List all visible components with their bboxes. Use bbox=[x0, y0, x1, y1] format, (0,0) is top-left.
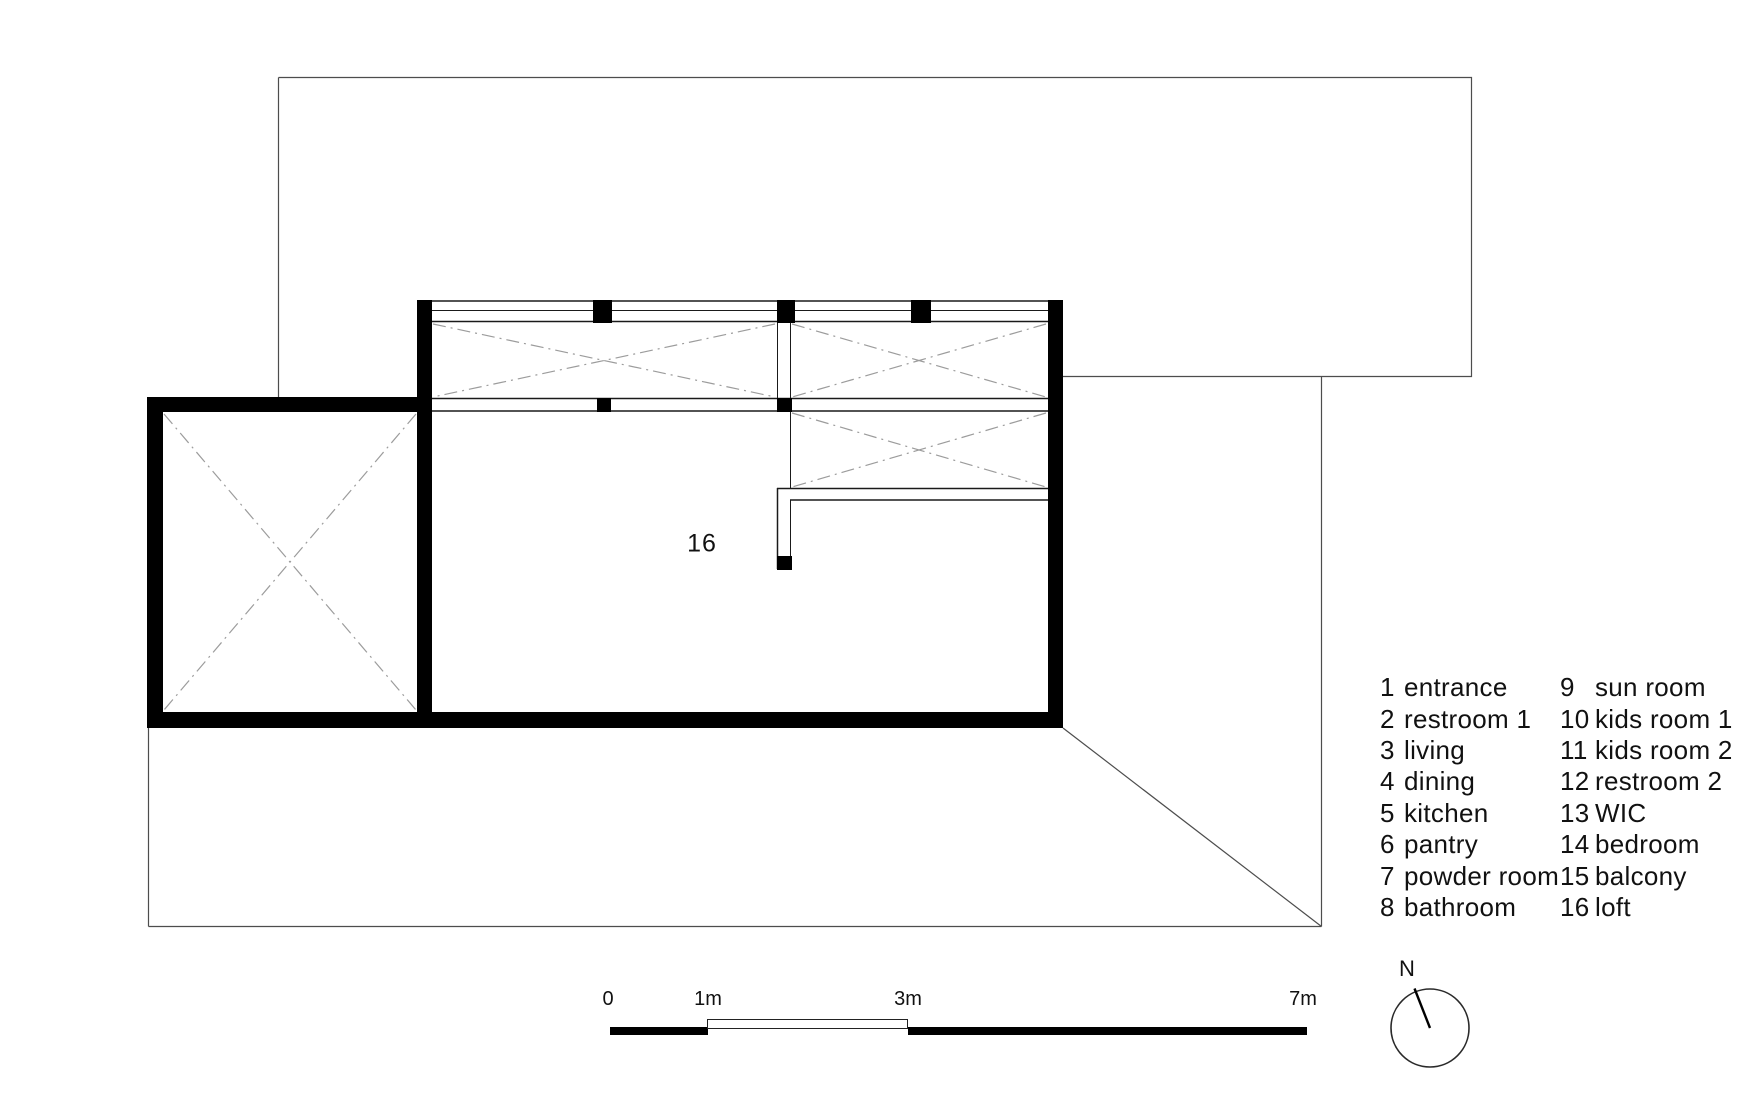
room-top-wall bbox=[147, 397, 417, 412]
ledge-band-lines bbox=[429, 399, 1048, 412]
scale-bar-segment-open bbox=[707, 1019, 908, 1029]
ledge-post bbox=[597, 398, 611, 412]
legend-item-number: 8 bbox=[1380, 892, 1404, 923]
hatch-section-b bbox=[792, 324, 1046, 397]
legend-item: 14 bedroom bbox=[1560, 829, 1733, 860]
stair-railing-lines bbox=[777, 488, 1048, 569]
legend-item-number: 2 bbox=[1380, 704, 1404, 735]
legend-item: 3 living bbox=[1380, 735, 1559, 766]
legend-item-number: 14 bbox=[1560, 829, 1595, 860]
legend-item-label: entrance bbox=[1404, 672, 1508, 703]
legend-item-label: kids room 1 bbox=[1595, 704, 1733, 735]
legend-item-label: restroom 1 bbox=[1404, 704, 1531, 735]
north-label: N bbox=[1399, 956, 1415, 982]
legend-item: 8 bathroom bbox=[1380, 892, 1559, 923]
legend-item-number: 5 bbox=[1380, 798, 1404, 829]
plan-left-wall bbox=[417, 300, 432, 727]
north-arrow-icon bbox=[1391, 989, 1469, 1068]
legend-item-number: 4 bbox=[1380, 766, 1404, 797]
stair-newel-post bbox=[777, 556, 792, 570]
legend-item-label: loft bbox=[1595, 892, 1631, 923]
room-left-wall bbox=[147, 397, 163, 727]
legend-item-number: 10 bbox=[1560, 704, 1595, 735]
scale-bar-segment-filled bbox=[610, 1027, 708, 1035]
hatch-section-c bbox=[792, 413, 1046, 487]
legend-item-number: 15 bbox=[1560, 861, 1595, 892]
legend-item-label: living bbox=[1404, 735, 1465, 766]
legend-item: 11 kids room 2 bbox=[1560, 735, 1733, 766]
legend-item-label: restroom 2 bbox=[1595, 766, 1722, 797]
legend-item: 9 sun room bbox=[1560, 672, 1733, 703]
legend-item-label: powder room bbox=[1404, 861, 1559, 892]
void-hatch-x bbox=[164, 324, 1046, 710]
lower-floor-outline bbox=[149, 78, 1472, 927]
legend-item-label: bathroom bbox=[1404, 892, 1516, 923]
legend-item: 16 loft bbox=[1560, 892, 1733, 923]
legend-item-label: kids room 2 bbox=[1595, 735, 1733, 766]
legend-item-number: 16 bbox=[1560, 892, 1595, 923]
legend-item-label: sun room bbox=[1595, 672, 1706, 703]
legend-item: 5 kitchen bbox=[1380, 798, 1559, 829]
legend-item-number: 9 bbox=[1560, 672, 1595, 703]
scale-bar-tick-label: 0 bbox=[602, 988, 613, 1011]
floor-plan-canvas: 16 1 entrance 2 restroom 1 3 living 4 di… bbox=[0, 0, 1753, 1117]
legend-item-label: bedroom bbox=[1595, 829, 1700, 860]
legend-item-number: 12 bbox=[1560, 766, 1595, 797]
scale-bar-segment-filled bbox=[908, 1027, 1307, 1035]
scale-bar-tick-label: 1m bbox=[694, 988, 722, 1011]
window-post bbox=[593, 300, 612, 323]
legend-item: 15 balcony bbox=[1560, 860, 1733, 891]
legend-item: 2 restroom 1 bbox=[1380, 703, 1559, 734]
plan-bottom-wall bbox=[147, 712, 1063, 728]
legend-item: 1 entrance bbox=[1380, 672, 1559, 703]
legend-item: 7 powder room bbox=[1380, 860, 1559, 891]
legend-item: 13 WIC bbox=[1560, 798, 1733, 829]
legend-item-label: WIC bbox=[1595, 798, 1646, 829]
legend-item: 6 pantry bbox=[1380, 829, 1559, 860]
roof-diagonal-line bbox=[1063, 728, 1322, 927]
room-number-label: 16 bbox=[687, 530, 717, 559]
floor-plan-drawing bbox=[0, 0, 1753, 1117]
plan-right-wall bbox=[1048, 300, 1063, 728]
legend-item: 12 restroom 2 bbox=[1560, 766, 1733, 797]
legend-item-label: pantry bbox=[1404, 829, 1478, 860]
window-band-lines bbox=[425, 301, 1055, 322]
legend-item-number: 7 bbox=[1380, 861, 1404, 892]
structural-walls bbox=[147, 300, 1063, 728]
legend-item: 4 dining bbox=[1380, 766, 1559, 797]
window-post bbox=[777, 300, 795, 323]
legend-item-number: 6 bbox=[1380, 829, 1404, 860]
window-post bbox=[911, 300, 931, 323]
legend-item-number: 3 bbox=[1380, 735, 1404, 766]
legend-column-2: 9 sun room 10 kids room 1 11 kids room 2… bbox=[1560, 672, 1733, 923]
legend-item-label: dining bbox=[1404, 766, 1475, 797]
ledge-post bbox=[777, 398, 792, 412]
legend-item-number: 1 bbox=[1380, 672, 1404, 703]
legend-item-label: balcony bbox=[1595, 861, 1687, 892]
legend-column-1: 1 entrance 2 restroom 1 3 living 4 dinin… bbox=[1380, 672, 1559, 923]
legend-item-label: kitchen bbox=[1404, 798, 1488, 829]
legend-item-number: 13 bbox=[1560, 798, 1595, 829]
scale-bar-tick-label: 7m bbox=[1289, 988, 1317, 1011]
legend-item: 10 kids room 1 bbox=[1560, 703, 1733, 734]
legend-item-number: 11 bbox=[1560, 735, 1595, 766]
scale-bar-tick-label: 3m bbox=[894, 988, 922, 1011]
